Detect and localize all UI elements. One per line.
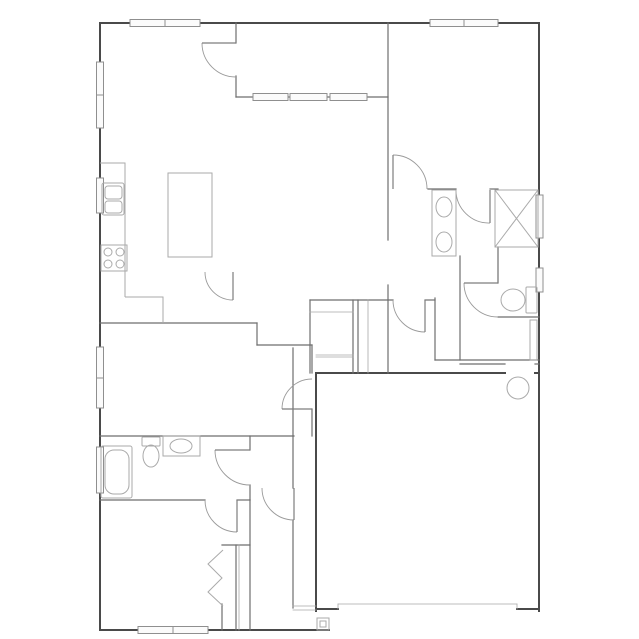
vanity-master: [432, 190, 456, 256]
door-master-suite-hall-swing-arc: [393, 300, 425, 332]
stove-burner-4: [116, 260, 124, 268]
kitchen-sink-bowl-2: [105, 201, 122, 213]
floor-plan-page: [0, 0, 639, 639]
kitchen-counter-lower: [125, 297, 163, 323]
stove-burner-1: [104, 248, 112, 256]
window-patio-2: [290, 94, 327, 101]
sink-master-2: [436, 232, 452, 252]
toilet-wc-tank: [526, 287, 537, 313]
door-patio-swing-arc: [202, 43, 236, 77]
window-patio-1: [253, 94, 288, 101]
door-pantry-swing-arc: [205, 272, 233, 300]
toilet-bath2-bowl: [143, 445, 159, 467]
laundry-door-leaf: [530, 320, 537, 360]
sink-bath2: [170, 439, 192, 453]
door-bath2-swing-arc: [215, 450, 250, 485]
window-shower-right: [536, 195, 543, 238]
stove-burner-3: [104, 260, 112, 268]
porch-post-inner: [320, 621, 326, 627]
door-bedroom2-swing-arc: [205, 500, 237, 532]
kitchen-sink-bowl-1: [105, 186, 122, 199]
sink-master-1: [436, 197, 452, 217]
door-bedroom3-swing-arc: [282, 379, 312, 409]
window-patio-3: [330, 94, 367, 101]
door-master-bath-swing-arc: [456, 190, 490, 223]
porch-post-outer: [317, 618, 329, 630]
window-bath2-left: [97, 447, 104, 493]
stove-burner-2: [116, 248, 124, 256]
door-master-bedroom-swing-arc: [393, 155, 427, 189]
floor-plan-drawing: [0, 0, 639, 639]
bathtub-inner: [105, 450, 129, 494]
closet2-bifold-door: [208, 550, 223, 606]
door-hall-pocket-swing-arc: [262, 488, 294, 520]
toilet-wc-bowl: [501, 289, 525, 311]
kitchen-island: [168, 173, 212, 257]
door-water-closet-swing-arc: [464, 283, 498, 317]
water-heater: [507, 377, 529, 399]
